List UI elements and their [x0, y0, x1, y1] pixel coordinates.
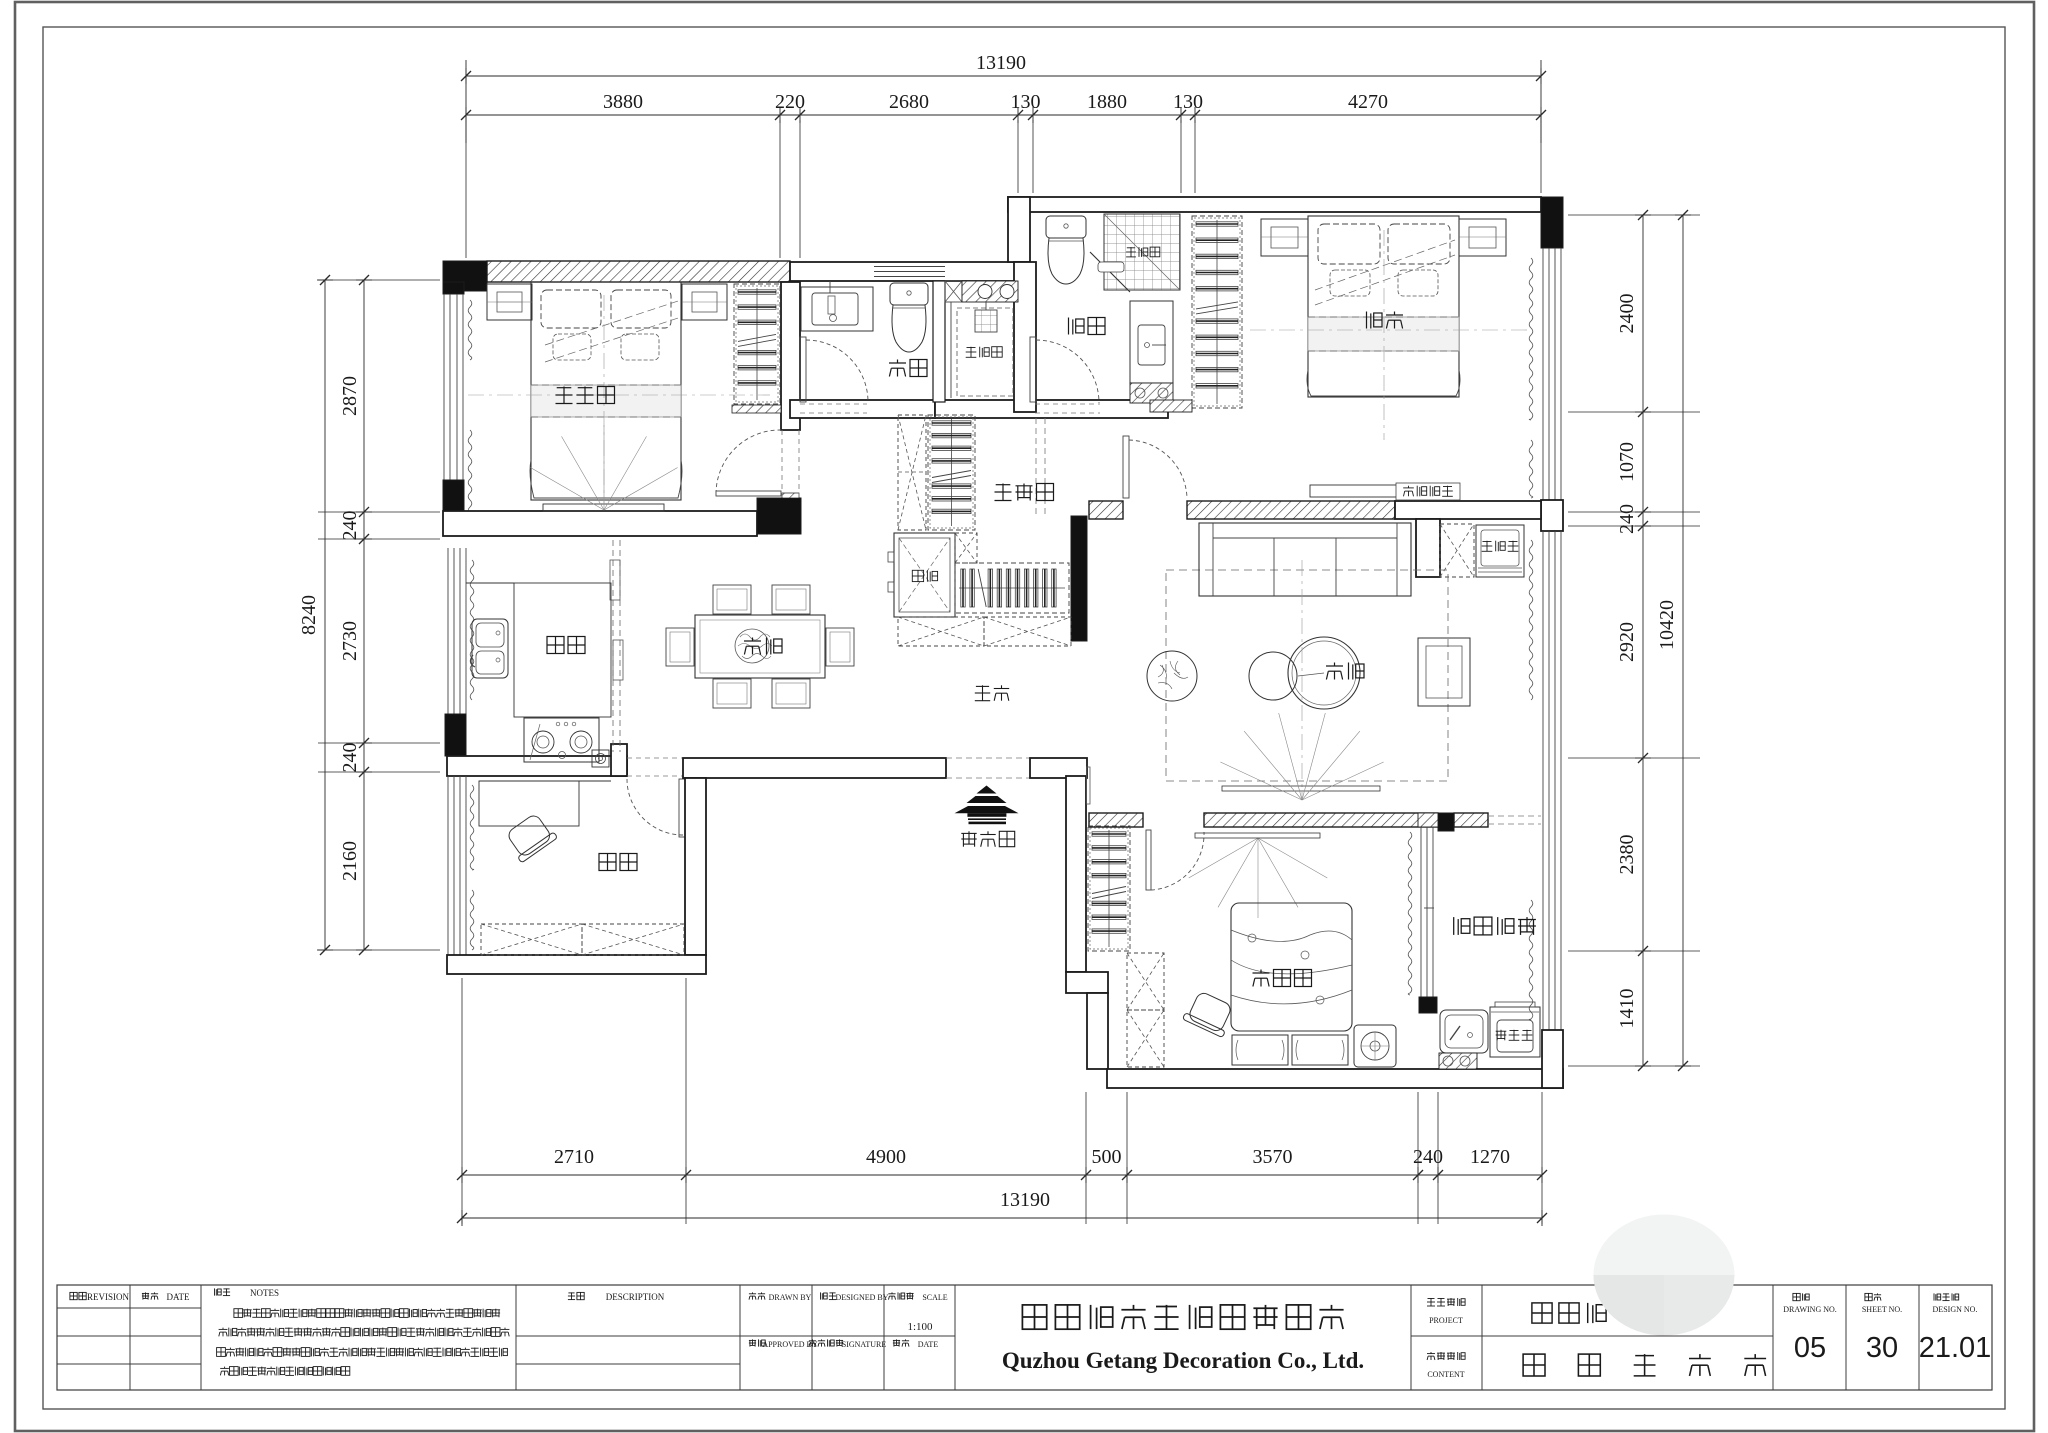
svg-text:2710: 2710: [554, 1146, 594, 1168]
svg-text:SHEET NO.: SHEET NO.: [1862, 1305, 1902, 1314]
svg-text:DESIGN NO.: DESIGN NO.: [1933, 1305, 1978, 1314]
svg-text:1270: 1270: [1470, 1146, 1510, 1168]
svg-text:DATE: DATE: [167, 1292, 190, 1302]
svg-text:PROJECT: PROJECT: [1429, 1316, 1463, 1325]
svg-text:DESCRIPTION: DESCRIPTION: [606, 1292, 665, 1302]
svg-text:1410: 1410: [1616, 989, 1638, 1029]
svg-text:2160: 2160: [339, 841, 361, 881]
svg-text:130: 130: [1173, 91, 1203, 113]
svg-text:2870: 2870: [339, 376, 361, 416]
svg-text:DESIGNED BY: DESIGNED BY: [835, 1293, 888, 1302]
svg-text:2730: 2730: [339, 621, 361, 661]
svg-text:REVISION: REVISION: [87, 1292, 129, 1302]
svg-text:240: 240: [1616, 504, 1638, 534]
svg-text:CONTENT: CONTENT: [1427, 1370, 1464, 1379]
svg-text:SIGNATURE: SIGNATURE: [842, 1340, 887, 1349]
svg-text:10420: 10420: [1656, 600, 1678, 650]
svg-text:4900: 4900: [866, 1146, 906, 1168]
svg-text:DATE: DATE: [918, 1340, 939, 1349]
svg-text:05: 05: [1794, 1332, 1826, 1364]
svg-text:1:100: 1:100: [907, 1321, 933, 1333]
svg-text:3570: 3570: [1253, 1146, 1293, 1168]
svg-text:13190: 13190: [976, 52, 1026, 74]
svg-text:21.01: 21.01: [1919, 1332, 1992, 1364]
svg-text:SCALE: SCALE: [922, 1293, 947, 1302]
svg-text:240: 240: [1413, 1146, 1443, 1168]
svg-text:30: 30: [1866, 1332, 1898, 1364]
svg-text:240: 240: [339, 743, 361, 773]
svg-text:2680: 2680: [889, 91, 929, 113]
svg-text:Quzhou Getang Decoration Co.,: Quzhou Getang Decoration Co., Ltd.: [1002, 1348, 1364, 1373]
svg-text:13190: 13190: [1000, 1189, 1050, 1211]
svg-text:2380: 2380: [1616, 835, 1638, 875]
svg-text:3880: 3880: [603, 91, 643, 113]
svg-text:500: 500: [1092, 1146, 1122, 1168]
svg-text:240: 240: [339, 511, 361, 541]
svg-text:NOTES: NOTES: [250, 1288, 279, 1298]
svg-text:DRAWING NO.: DRAWING NO.: [1783, 1305, 1837, 1314]
svg-text:4270: 4270: [1348, 91, 1388, 113]
svg-text:1880: 1880: [1087, 91, 1127, 113]
svg-text:8240: 8240: [298, 595, 320, 635]
svg-text:130: 130: [1011, 91, 1041, 113]
svg-text:2400: 2400: [1616, 294, 1638, 334]
svg-text:2920: 2920: [1616, 622, 1638, 662]
svg-text:1070: 1070: [1616, 442, 1638, 482]
svg-text:DRAWN BY: DRAWN BY: [769, 1293, 812, 1302]
svg-text:220: 220: [775, 91, 805, 113]
